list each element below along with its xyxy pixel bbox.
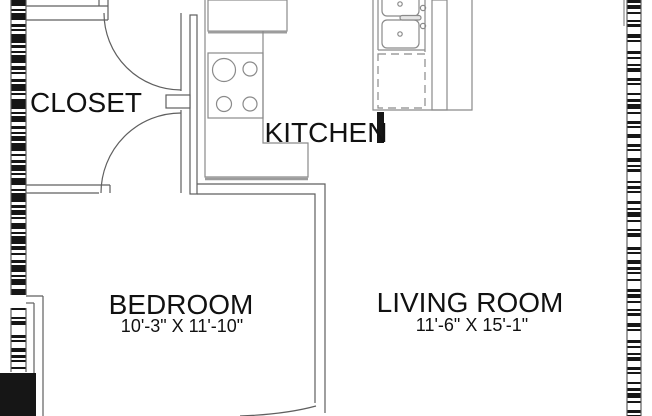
wall-hatch-icon <box>628 0 641 416</box>
refrigerator-icon <box>208 0 287 31</box>
bedroom-door-icon <box>240 406 316 416</box>
dishwasher-icon <box>378 54 425 108</box>
room-dimensions-bedroom: 10'-3" X 11'-10" <box>121 316 243 337</box>
room-dimensions-living-room: 11'-6" X 15'-1" <box>416 315 528 336</box>
floorplan-drawing <box>0 0 652 416</box>
room-label-kitchen: KITCHEN <box>265 117 388 149</box>
exterior-wall-right <box>624 0 641 416</box>
wall-solid-block <box>0 373 36 416</box>
floorplan-stage: CLOSET KITCHEN BEDROOM 10'-3" X 11'-10" … <box>0 0 652 416</box>
exterior-wall-left <box>11 0 26 372</box>
wall-hatch-icon <box>12 0 26 295</box>
room-label-closet: CLOSET <box>30 87 142 119</box>
stove-icon <box>208 53 263 118</box>
sink-icon <box>382 0 426 48</box>
sink-counter <box>373 0 472 143</box>
wall-hatch-icon <box>12 308 26 369</box>
kitchen-counter <box>205 0 308 179</box>
